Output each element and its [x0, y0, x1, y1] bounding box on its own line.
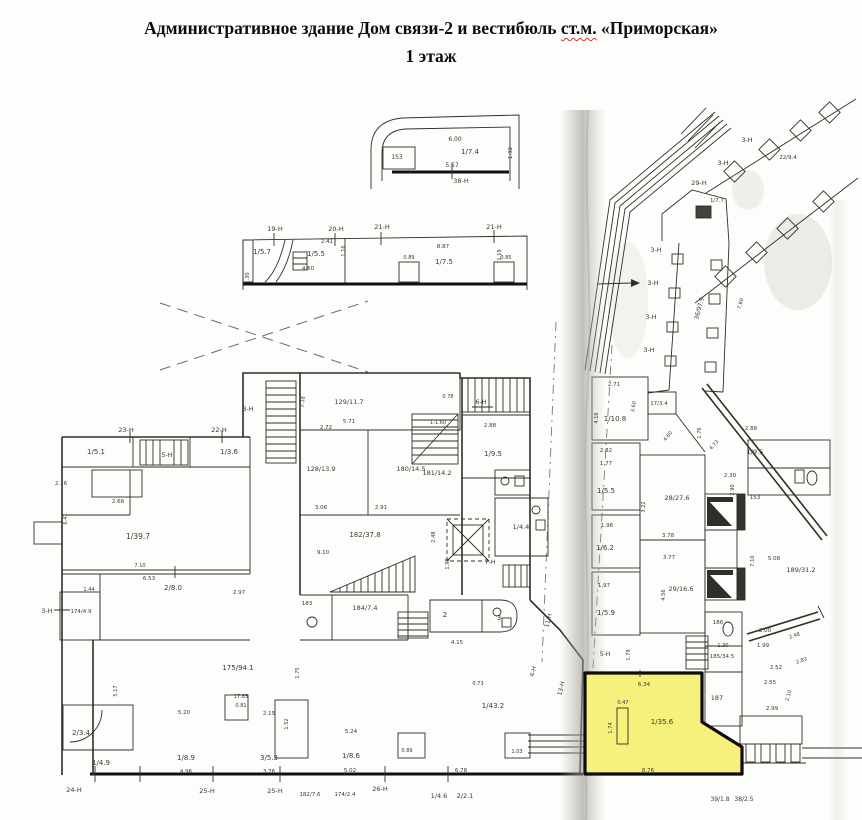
plan-label: 39/1.8 — [710, 796, 729, 803]
plan-label: 3.06 — [315, 505, 328, 511]
plan-label: 181/14.2 — [422, 469, 451, 477]
plan-label: 1/7.5 — [435, 258, 453, 266]
plan-label: 17/3.4 — [650, 401, 668, 407]
plan-label: 2.97 — [233, 590, 246, 596]
main-building-walls — [34, 373, 585, 782]
plan-label: 4.60 — [662, 430, 674, 442]
plan-label: 2.66 — [112, 499, 125, 505]
plan-label: 3-Н — [717, 159, 728, 167]
plan-label: 2.15 — [263, 711, 276, 717]
plan-label: 128/13.9 — [306, 465, 335, 473]
plan-label: 1/9.5 — [747, 448, 764, 456]
plan-label: 1.92 — [508, 147, 514, 159]
plan-label: 2.18 — [299, 396, 307, 408]
plan-label: 4.56 — [661, 589, 667, 600]
plan-label: 1.19 — [497, 249, 503, 260]
plan-label: 3-Н — [741, 136, 752, 144]
plan-label: 5.17 — [113, 685, 119, 696]
plan-label: 3 — [497, 614, 501, 622]
plan-label: 2.30 — [724, 473, 737, 479]
plan-label: 38-Н — [453, 177, 469, 185]
plan-label: 22-Н — [211, 426, 227, 434]
plan-label: 1.30 — [717, 643, 728, 649]
plan-label: 3-Н — [645, 313, 656, 321]
plan-label: 2.00 — [759, 628, 772, 634]
plan-label: 175/94.1 — [222, 664, 253, 672]
plan-label: 5.02 — [344, 768, 356, 774]
plan-label: 4.60 — [302, 266, 315, 272]
plan-label: 1.98 — [445, 558, 451, 569]
plan-label: 5.24 — [345, 729, 358, 735]
plan-label: 4.96 — [180, 769, 193, 775]
plan-label: 3-Н — [647, 279, 658, 287]
plan-label: 1/5.9 — [597, 609, 615, 617]
plan-label: 1.74 — [608, 722, 614, 733]
plan-label: 7-Н — [484, 558, 495, 566]
plan-label: 17.85 — [234, 694, 248, 700]
plan-label: 2.82 — [600, 448, 612, 454]
plan-label: 2 — [443, 611, 447, 619]
plan-label: 6.78 — [455, 768, 468, 774]
plan-label: 25-Н — [267, 787, 283, 795]
plan-label: 2.91 — [375, 505, 387, 511]
plan-label: 129/11.7 — [334, 398, 363, 406]
plan-label: 2/2.1 — [457, 792, 474, 800]
plan-label: 153 — [750, 495, 761, 501]
plan-label: 2.99 — [766, 706, 779, 712]
plan-label: 2/8.0 — [164, 584, 182, 592]
plan-label: 1/3.6 — [220, 448, 238, 456]
plan-label: 174/2.4 — [334, 792, 356, 798]
plan-label: 1/35.6 — [651, 718, 674, 726]
plan-label: 2.16 — [55, 481, 68, 487]
plan-label: 3-Н — [41, 607, 52, 615]
plan-label: 1/4.4 — [513, 523, 530, 531]
plan-label: 7.10 — [750, 555, 756, 566]
plan-label: 189/31.2 — [786, 566, 815, 574]
plan-label: 2.52 — [770, 665, 782, 671]
plan-label: 1.52 — [284, 718, 290, 729]
plan-label: 3.60 — [630, 401, 638, 413]
plan-label: 1/7.4 — [461, 148, 479, 156]
plan-label: 1/8.9 — [177, 754, 195, 762]
plan-label: 21-Н — [374, 223, 390, 231]
plan-label: 2.55 — [764, 680, 777, 686]
plan-label: 38/2.5 — [734, 796, 753, 803]
plan-label: 1/10.8 — [604, 415, 626, 423]
plan-label: 4.16 — [594, 412, 600, 423]
plan-label: 5.08 — [768, 556, 781, 562]
plan-label: 1/6.2 — [596, 544, 614, 552]
plan-label: 8.87 — [437, 244, 450, 250]
plan-label: 183 — [302, 601, 313, 607]
dashed-construction-lines — [160, 301, 612, 668]
plan-label: 1.16 — [341, 245, 347, 256]
top-building-outline — [371, 115, 519, 189]
plan-label: 0.73 — [472, 681, 483, 687]
plan-label: 1/5.5 — [597, 487, 615, 495]
plan-label: 3-Н — [242, 405, 253, 413]
plan-label: 1.44 — [83, 587, 94, 593]
plan-label: 19-Н — [267, 225, 283, 233]
plan-label: 20-Н — [328, 225, 344, 233]
plan-label: 29-Н — [691, 179, 707, 187]
plan-label: 185/34.5 — [710, 654, 735, 660]
plan-label: 3.22 — [641, 501, 647, 512]
plan-label: 28/27.6 — [665, 494, 690, 502]
plan-label: 4.15 — [451, 640, 464, 646]
plan-label: 8.76 — [642, 768, 655, 774]
plan-label: 1/7.7 — [710, 198, 725, 204]
plan-label: 2.41 — [321, 239, 333, 245]
plan-label: 2.48 — [431, 531, 437, 542]
plan-label: 0.89 — [403, 255, 414, 261]
plan-label: 5.20 — [178, 710, 191, 716]
plan-label: 24-Н — [66, 786, 82, 794]
plan-label: 5-Н — [161, 451, 172, 459]
plan-label: 182/7.6 — [299, 792, 321, 798]
plan-label: 3-Н — [650, 246, 661, 254]
plan-label: 2/3.4 — [72, 729, 90, 737]
plan-label: 2.72 — [320, 425, 332, 431]
plan-label: 3.77 — [663, 555, 676, 561]
plan-label: 1/39.7 — [126, 532, 150, 541]
plan-label: 1.96 — [601, 523, 614, 529]
plan-label: 1/5.7 — [253, 248, 271, 256]
plan-label: 0.81 — [235, 703, 246, 709]
floor-plan-drawing: 6.001531/7.45.5738-Н1.9219-Н20-Н21-Н21-Н… — [0, 0, 862, 820]
plan-label: 6.00 — [448, 136, 462, 143]
plan-label: 21-Н — [486, 223, 502, 231]
scanned-floor-plan-page: Административное здание Дом связи-2 и ве… — [0, 0, 862, 820]
plan-label: 3-Н — [643, 346, 654, 354]
plan-label: 7.60 — [737, 298, 746, 310]
plan-label: 1.03 — [511, 749, 522, 755]
plan-label: 1.76 — [697, 427, 703, 438]
plan-label: 36/97.9 — [693, 296, 706, 320]
plan-label: 6.41 — [63, 513, 69, 524]
plan-label: 2.83 — [795, 656, 808, 665]
plan-label: 3.78 — [662, 533, 675, 539]
plan-label: 2.71 — [608, 382, 620, 388]
plan-label: 1.99 — [757, 643, 770, 649]
plan-label: 1/43.2 — [482, 702, 504, 710]
plan-label: 5-Н — [600, 651, 611, 658]
plan-label: 1/9.5 — [484, 450, 502, 458]
plan-label: 180/14.5 — [396, 465, 425, 473]
plan-label: 1-1.60 — [430, 420, 446, 426]
plan-label: 7.10 — [134, 563, 145, 569]
plan-label: 1.30 — [245, 272, 251, 283]
plan-label: 1.79 — [626, 649, 632, 660]
plan-label: 1.77 — [600, 461, 613, 467]
plan-label: 187 — [711, 694, 723, 702]
plan-label: 29/16.6 — [669, 585, 694, 593]
strip-building-outline — [243, 230, 527, 290]
plan-label: 1/4.6 — [431, 792, 448, 800]
plan-label: 2.88 — [484, 423, 497, 429]
plan-label: 182/37.8 — [349, 531, 380, 539]
plan-label: 4-Н — [529, 666, 538, 678]
plan-label: 9.10 — [317, 550, 330, 556]
plan-label: 1/5.1 — [87, 448, 105, 456]
plan-label: 2.48 — [788, 631, 801, 640]
plan-label: 153 — [391, 154, 403, 161]
plan-label: 6.34 — [638, 682, 651, 688]
track-lines — [585, 108, 731, 374]
plan-label: 6.53 — [143, 576, 156, 582]
plan-label: 5.71 — [343, 419, 355, 425]
plan-label: 26-Н — [372, 785, 388, 793]
plan-label: 1.75 — [295, 667, 301, 678]
plan-label: 2.88 — [745, 426, 758, 432]
plan-label: 186 — [713, 620, 724, 626]
plan-label: 1/4.9 — [92, 759, 110, 767]
plan-label: 0.89 — [401, 748, 412, 754]
plan-label: 25-Н — [199, 787, 215, 795]
plan-label: 174/4.9 — [70, 609, 92, 615]
plan-label: 4.73 — [708, 439, 720, 451]
plan-label: 6-Н — [475, 398, 486, 406]
plan-label: 22/9.4 — [779, 155, 797, 161]
plan-label: 5.57 — [445, 162, 459, 169]
plan-label: 3.76 — [263, 769, 276, 775]
plan-label: 0.47 — [617, 700, 628, 706]
plan-label: 2.10 — [785, 690, 794, 702]
plan-label: 23-Н — [118, 426, 134, 434]
plan-label: 1.97 — [598, 583, 611, 589]
plan-label: 1/8.6 — [342, 752, 360, 760]
vestibule-corridor — [648, 190, 729, 393]
plan-label: 2.90 — [730, 484, 736, 495]
plan-label: 184/7.4 — [353, 604, 378, 612]
plan-label: 3/5.3 — [260, 754, 278, 762]
plan-label: 1/5.5 — [307, 250, 325, 258]
plan-label: 0.78 — [442, 394, 453, 400]
